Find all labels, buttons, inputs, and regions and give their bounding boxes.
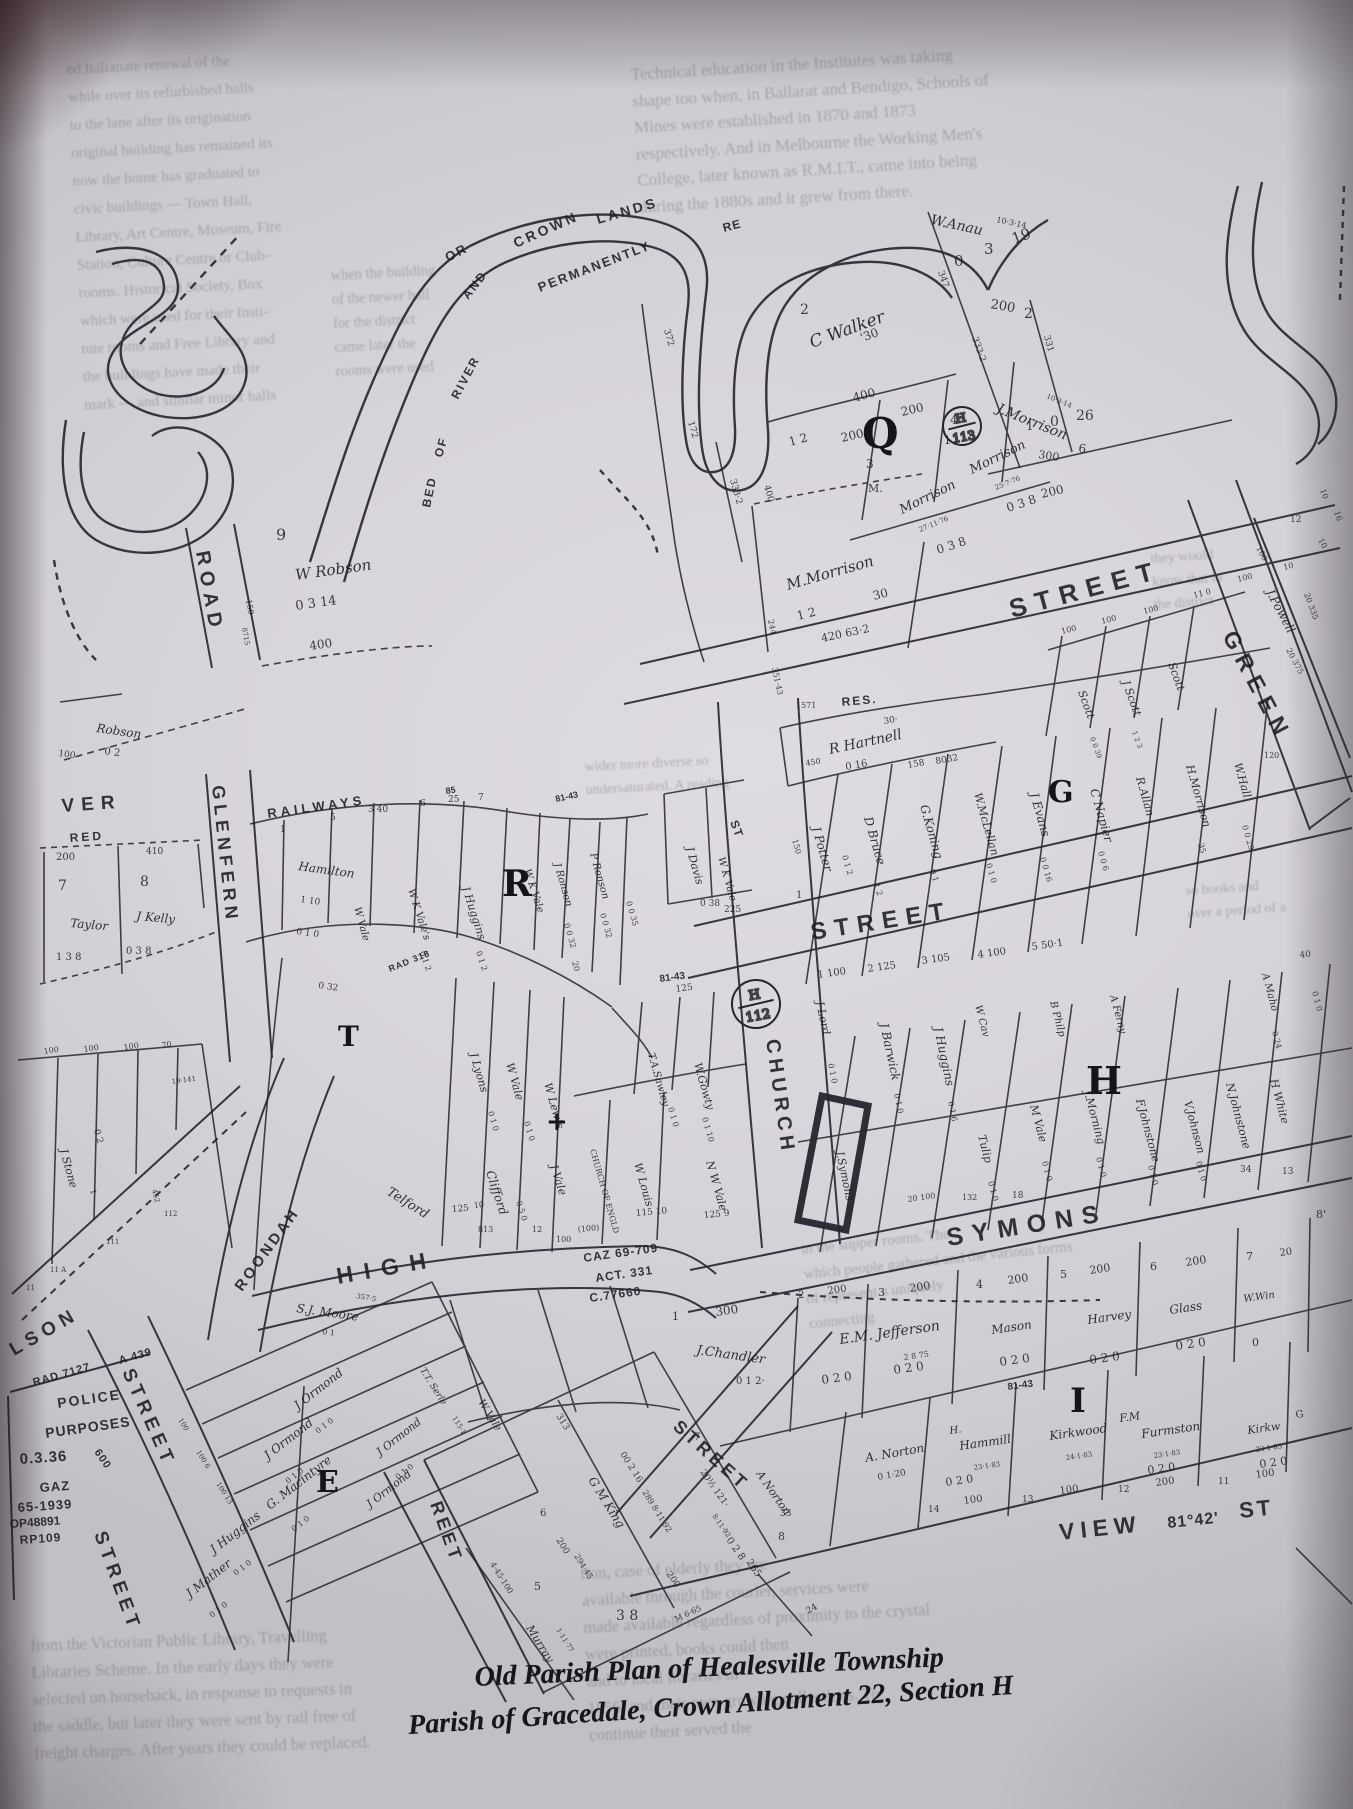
street-or-survey-label: OR (442, 240, 470, 264)
lot-label: 0 1 2 (474, 950, 489, 972)
street-or-survey-label: RP109 (19, 1530, 62, 1547)
lot-label: 100 (1059, 1483, 1079, 1497)
lot-label: 0 1 (322, 1327, 336, 1338)
lot-label: 30· (883, 715, 899, 727)
lot-label: J Mather (181, 1556, 235, 1603)
lot-label: 4·45·100 (488, 1560, 515, 1595)
lot-label: 115 10 (635, 1206, 668, 1219)
lot-label: 20 100 (907, 1191, 936, 1204)
lot-label: Kirkw (1246, 1419, 1282, 1437)
lot-label: 200 (56, 852, 75, 863)
lot-label: 0 2 0 (1174, 1335, 1206, 1353)
lot-label: 4 100 (977, 946, 1007, 961)
lot-label: 0 2 (104, 746, 121, 759)
lot-label: 452 (150, 1188, 161, 1203)
section-letter: G (1048, 775, 1074, 810)
lot-label: 10 (473, 1200, 484, 1210)
lot-label: 0 24 (1270, 1030, 1283, 1050)
street-or-survey-label: RAILWAYS (266, 792, 366, 821)
lot-label: 400 (308, 636, 333, 653)
lot-label: W Lewis (541, 1081, 567, 1130)
street-or-survey-label: POLICE (56, 1386, 122, 1411)
lot-label: CHURCH OF ENGLD (588, 1148, 621, 1234)
lot-label: 11 0 (1192, 587, 1211, 600)
lot-label: 0 2 0 (1147, 1460, 1177, 1477)
lot-label: 0 0 6 (1096, 850, 1110, 872)
street-or-survey-label: RIVER (448, 354, 482, 402)
lot-label: J Ronson (551, 860, 574, 908)
lot-label: T.T. Serle (417, 1366, 448, 1407)
lot-label: 4 (976, 1278, 983, 1291)
lot-label: 3 40 (368, 805, 388, 815)
lot-label: 0 1 0 (296, 927, 320, 940)
lot-label: 0 1 0 (892, 1093, 905, 1115)
lot-label: 25 (448, 795, 460, 805)
lot-label: 4 (950, 413, 958, 427)
lot-label: 3 (866, 457, 874, 471)
lot-label: 100 (1060, 624, 1077, 636)
street-or-survey-label: RES. (841, 692, 878, 709)
lot-label: 125 (451, 1204, 469, 1215)
lot-label: 0 2 0 (998, 1351, 1030, 1369)
lot-label: 132 (962, 1193, 977, 1202)
lot-label: 0 1 0 (1094, 1156, 1108, 1178)
lot-label: 0 2 (91, 1128, 104, 1144)
street-or-survey-label: VIEW (1058, 1510, 1143, 1545)
lot-label: T.A.Sawley (645, 1052, 671, 1108)
lot-label: 158 (907, 758, 926, 771)
lot-label: 33 (780, 1509, 792, 1519)
lot-label: 0 1·20 (877, 1468, 907, 1483)
lot-label: N W Vale (703, 1158, 730, 1212)
lot-label: 10 (1282, 561, 1294, 572)
lot-label: 357·5 (356, 1292, 377, 1303)
lot-label: A. Norton (863, 1441, 925, 1465)
lot-label: 8·11·92 (710, 1513, 732, 1539)
lot-label: E.M. Jefferson (837, 1318, 941, 1348)
section-letter: Q (862, 409, 899, 458)
lot-label: 0 3 14 (294, 593, 337, 614)
lot-label: 8032 (935, 753, 959, 767)
street-or-survey-label: ROAD (191, 549, 227, 634)
lot-label: 6 (540, 1508, 546, 1519)
lot-label: 200 (909, 1279, 932, 1295)
lot-label: 23·1·83 (1255, 1442, 1283, 1454)
street-or-survey-label: 600 (92, 1447, 114, 1471)
lot-label: 0 2 8 (724, 1535, 748, 1562)
lot-label: 200 (900, 400, 925, 419)
lot-label: J Lyons (467, 1049, 491, 1094)
lot-label: Clifford (483, 1169, 511, 1217)
lot-label: 0 1 0 (486, 1110, 500, 1132)
street-or-survey-label: RE (721, 217, 743, 235)
lot-label: 11 A (50, 1266, 67, 1274)
lot-label: Tulip (975, 1133, 995, 1164)
lot-label: 200 (989, 297, 1016, 316)
survey-circle-112: H 112 (728, 976, 784, 1032)
lot-label: 12 (1118, 1485, 1129, 1495)
street-or-survey-label: 0.3.36 (19, 1448, 68, 1468)
lot-label: 410 (146, 847, 163, 857)
lot-label: J Davis (683, 843, 707, 886)
lot-label: R Hartnell (827, 727, 904, 758)
lot-label: 0 1 6 (946, 1101, 959, 1123)
lot-label: 8 (140, 874, 149, 890)
lot-label: Harvey (1085, 1307, 1132, 1327)
lot-label: 200 (1185, 1253, 1208, 1269)
lot-label: 3 (878, 1286, 885, 1299)
lot-label: 1 (1026, 419, 1034, 433)
street-or-survey-label: 81-43 (1007, 1378, 1034, 1393)
section-letter: T (338, 1020, 359, 1053)
lot-label: W K Vale's (405, 888, 432, 942)
lot-label: 0 1 10 (700, 1116, 716, 1143)
circle-112-bottom: 112 (745, 1007, 772, 1026)
lot-label: W.Hall (1231, 761, 1254, 800)
street-or-survey-label: 81-43 (554, 789, 579, 804)
lot-label: 0 38 (700, 899, 720, 909)
lot-label: 2 (800, 302, 809, 318)
street-or-survey-label: GREEN (1218, 626, 1298, 746)
lot-label: 70 (161, 1040, 172, 1050)
lot-label: J Potter (808, 822, 835, 874)
lot-label: 813 (478, 1225, 493, 1234)
lot-label: 0 2 0 (820, 1369, 852, 1387)
lot-label: 6 (420, 799, 426, 809)
lot-label: 27·11·76 (918, 515, 950, 534)
lot-label: Hammill (957, 1432, 1011, 1453)
lot-label: 244 (766, 619, 778, 636)
lot-label: 1 (88, 1188, 98, 1195)
street-or-survey-label: STREET (809, 897, 954, 946)
lot-label: 0 0 39 (1088, 736, 1103, 760)
lot-label: 25·7·76 (994, 474, 1022, 492)
lot-label: 400 (851, 385, 877, 404)
lot-label: 100 (1142, 604, 1159, 616)
lot-label: 125 9 (703, 1209, 730, 1221)
lot-label: 11 (26, 1284, 35, 1292)
lot-label: 0 1 0 (1194, 1160, 1208, 1182)
lot-label: 6 (1078, 441, 1088, 456)
lot-label: 0 3 8 (1005, 492, 1038, 515)
lot-label: 1 2 (787, 430, 809, 448)
lot-label: 20 (570, 960, 581, 972)
lot-label: Taylor (70, 916, 110, 933)
lot-label: 1 10 (300, 895, 322, 908)
lot-label: 7 (1246, 1250, 1253, 1263)
lot-label: 5 50·1 (1031, 938, 1064, 953)
lot-label: 20 (1279, 1246, 1293, 1259)
lot-label: 0 1 0 (666, 1106, 680, 1128)
lot-label: J Stone (57, 1145, 81, 1189)
street-or-survey-label: AND (459, 268, 490, 302)
lot-label: 7 (478, 793, 484, 803)
lot-label: 225 (724, 905, 741, 915)
street-or-survey-label: OP48891 (9, 1513, 61, 1531)
lot-label: 0 (954, 252, 964, 270)
lot-label: 20 375 (1284, 647, 1305, 676)
lot-label: 12 (1290, 515, 1301, 525)
lot-label: 100 (176, 1417, 190, 1433)
lot-label: 347 (935, 270, 950, 290)
lot-label: A Maho (1259, 971, 1280, 1013)
lot-label: 9 (276, 525, 286, 544)
lot-label: 0 1 2 (840, 854, 854, 876)
lot-label: 8 (778, 1530, 785, 1543)
lot-label: H White (1267, 1076, 1292, 1125)
street-or-survey-label: 65-1939 (17, 1496, 73, 1515)
lot-label: 14 (928, 1505, 940, 1515)
lot-label: 34 (1240, 1165, 1252, 1175)
lot-label: 372 (661, 328, 675, 347)
lot-label: 7 (694, 1432, 700, 1443)
lot-label: M 6·65 (673, 1604, 703, 1624)
lot-label: 0 (1050, 414, 1059, 430)
lot-label: 0 2 0 (945, 1472, 975, 1489)
lot-label: 24·1·83 (1065, 1450, 1093, 1462)
lot-label: J Ormond (372, 1415, 424, 1459)
street-or-survey-label: STREET (89, 1529, 145, 1635)
lot-label: 100 (1236, 572, 1253, 584)
lot-label: 400 (761, 484, 775, 504)
lot-label: 3 8 (616, 1608, 638, 1624)
lot-label: 1·11·77 (554, 1627, 575, 1654)
lot-label: 0 5 0 (514, 1200, 529, 1222)
lot-label: 0 16 (845, 758, 869, 773)
lot-label: W.Win (1243, 1290, 1276, 1305)
lot-label: 112 (164, 1210, 177, 1218)
lot-label: 0 2 0 (1088, 1349, 1120, 1367)
lot-label: S.J. Moore (296, 1301, 360, 1324)
lot-label: F.Johnstone (1133, 1096, 1163, 1163)
lot-label: 0 0 32 (598, 912, 614, 939)
lot-label: W Cav (972, 1004, 991, 1039)
lot-label: 200 (1040, 482, 1065, 501)
lot-label: 200 (827, 1283, 847, 1297)
lot-label: 100 (1254, 545, 1269, 563)
street-or-survey-label: ST (727, 818, 746, 839)
lot-label: G.Koning (917, 803, 946, 861)
lot-label: 111 (106, 1238, 119, 1246)
lot-label: 120 (1264, 751, 1279, 760)
lot-label: 0 2 0 (892, 1359, 924, 1377)
lot-label: H. (948, 1424, 962, 1437)
lot-label: W Robson (294, 555, 372, 583)
lot-label: J Huggins (459, 883, 489, 941)
lot-label: 100 (1100, 614, 1117, 626)
lot-label: 0 32 (318, 981, 339, 994)
street-or-survey-label: CHURCH (761, 1038, 799, 1157)
lot-label: 0 1 0 (984, 862, 998, 884)
lot-label: Telford (384, 1185, 432, 1222)
lot-label: 0 0 35 (624, 900, 640, 927)
lot-label: 26 (1076, 408, 1094, 424)
lot-label: W Vale (503, 1061, 526, 1102)
lot-label: 200 (553, 1536, 571, 1556)
lot-label: 125 (675, 983, 694, 995)
lot-label: 0 1 0 (1310, 990, 1324, 1012)
lot-label: Robson (95, 721, 143, 741)
street-or-survey-label: GAZ (39, 1478, 70, 1495)
lot-label: 0 1 0 (522, 1120, 536, 1142)
scanned-book-page: ed Italianate renewal of thewhile over i… (0, 0, 1353, 1809)
lot-label: M Vale (1027, 1102, 1050, 1144)
lot-label: 19 (1009, 224, 1033, 247)
lot-label: 16 (1332, 510, 1344, 523)
lot-label: Scott (1075, 689, 1097, 721)
lot-label: J Huggins (930, 1023, 957, 1087)
street-or-survey-label: 81-43 (659, 970, 686, 985)
lot-label: 200 (1155, 1475, 1175, 1489)
lot-label: 5 (1060, 1268, 1067, 1281)
lot-label: 0 1 0 (290, 1514, 312, 1534)
lot-label: 300 (714, 1302, 739, 1319)
lot-label: 24 (805, 1602, 820, 1617)
lot-label: 0 (1252, 1336, 1259, 1349)
lot-label: 2 125 (867, 960, 897, 975)
lot-label: 0 1 0 (1146, 1164, 1160, 1186)
lot-label: 0 0 16 (1038, 856, 1054, 883)
lot-label: M.Morrison (783, 552, 875, 594)
lot-label: 100 (83, 1043, 99, 1054)
lot-label: 115·1 (450, 1415, 467, 1436)
lot-label: 0 1 2· (736, 1376, 765, 1387)
street-or-survey-label: BED (419, 475, 439, 509)
lot-label: 13 (1282, 1167, 1294, 1177)
lot-label: 7 (58, 878, 67, 894)
lot-label: 1 2 3 (1130, 730, 1144, 749)
lot-label: 313 (553, 1412, 571, 1432)
street-or-survey-label: LSON (6, 1304, 83, 1361)
street-or-survey-label: ROONDAH (231, 1205, 303, 1295)
lot-label: N.Johnstone (1223, 1080, 1254, 1150)
lot-label: 30 (871, 586, 889, 603)
lot-label: 23·1·83 (1153, 1448, 1181, 1460)
street-or-survey-label: LANDS (594, 194, 659, 227)
lot-label: 150 (790, 838, 803, 855)
lot-label: J Huggins (205, 1508, 263, 1558)
lot-label: M. (868, 482, 883, 495)
lot-label: 100 (556, 1235, 571, 1244)
lot-label: 0 1 0 (232, 1558, 254, 1578)
lot-label: 19·141 (171, 1075, 196, 1086)
lot-label: 0 3 8 (126, 946, 151, 957)
street-or-survey-label: 81°42' (1167, 1510, 1220, 1532)
lot-label: P Ronson (587, 851, 611, 901)
lot-label: 2 (798, 1290, 804, 1301)
street-or-survey-label: CAZ 69-709 (582, 1241, 659, 1265)
lot-label: 10 (1318, 488, 1330, 501)
lot-label: 2 (1024, 306, 1033, 322)
lot-label: 0 1 0 (986, 1180, 1000, 1202)
lot-label: B Philp (1047, 999, 1067, 1039)
lot-label: 1 (796, 890, 802, 901)
lot-label: 0 1 0 (1040, 1160, 1054, 1182)
street-or-survey-label: ST (1238, 1495, 1275, 1523)
street-or-survey-label: RED (69, 829, 104, 845)
lot-label: J Lord (813, 998, 833, 1036)
lot-label: 333·2 (969, 336, 987, 364)
lot-label: 10 (1316, 537, 1329, 550)
lot-label: J Kelly (133, 909, 176, 927)
lot-label: 3 (984, 240, 994, 258)
lot-label: 1 (672, 1310, 679, 1323)
street-or-survey-label: VER (61, 792, 122, 817)
lot-label: Furmston (1139, 1419, 1200, 1441)
lot-label: J Vale (547, 1161, 570, 1197)
lot-label: W.Anau (929, 212, 984, 239)
street-or-survey-label: OF (431, 435, 450, 459)
lot-label: 00 2 16 (617, 1450, 644, 1485)
lot-label: 100 (963, 1493, 983, 1507)
street-or-survey-label: HIGH (334, 1246, 438, 1289)
lot-label: F.M (1118, 1409, 1142, 1425)
lot-label: 5 (330, 813, 336, 823)
circle-113-bottom: 113 (951, 428, 976, 446)
lot-label: 8' (1316, 1208, 1326, 1221)
lot-label: 351·43 (770, 667, 785, 696)
section-letter: I (1070, 1381, 1086, 1421)
lot-label: 35 (1196, 842, 1207, 854)
lot-label: 18 (1012, 1191, 1024, 1201)
lot-label: 1 (280, 825, 286, 835)
lot-label: (100) (577, 1223, 599, 1234)
lot-label: J Ormond (259, 1415, 316, 1464)
lot-label: J Barwick (876, 1019, 902, 1082)
circle-112-top: H (748, 987, 762, 1004)
lot-label: J.Powell (1262, 584, 1298, 635)
parish-plan-map: H 113 H 112 ORCROWNLANDSANDPERMANENTLYRE… (0, 0, 1353, 1809)
lot-label: G M King (585, 1474, 628, 1531)
lot-label: Kirkwood (1047, 1421, 1108, 1443)
lot-label: 1 3 8 (56, 952, 81, 963)
lot-label: 8715 (240, 627, 251, 646)
lot-label: 200 (1007, 1271, 1030, 1287)
lot-label: 0 1 0 (208, 1600, 230, 1620)
lot-label: 20 335 (1302, 592, 1320, 621)
lot-label: 450 (805, 756, 822, 768)
lot-label: W Louis (631, 1161, 656, 1208)
lot-label: 11 (1218, 1477, 1229, 1487)
lot-label: Hamilton (297, 859, 356, 881)
lot-label: 0 1 0 (826, 1063, 839, 1085)
lot-label: V.Johnson (1181, 1099, 1208, 1155)
lot-label: 40 (1299, 949, 1312, 961)
lot-label: 13 (1022, 1495, 1034, 1505)
lot-label: 3 105 (921, 952, 951, 967)
lot-label: 100 6 (194, 1449, 212, 1471)
lot-label: 1571 (796, 701, 816, 710)
lot-label: 0 0 32 (562, 922, 578, 949)
lot-label: 100 (58, 749, 77, 761)
lot-label: 6 (1150, 1260, 1157, 1273)
lot-label: J Scott (1118, 677, 1144, 719)
lot-label: G (1295, 1409, 1304, 1421)
street-or-survey-label: PURPOSES (44, 1413, 131, 1441)
lot-label: 1 2 (795, 605, 817, 623)
lot-label: 0 3 8 (935, 534, 968, 557)
lot-label: 100 (43, 1045, 59, 1056)
lot-label: W.McLellan (971, 791, 1001, 857)
lot-label: J.Chandler (692, 1343, 766, 1368)
lot-label: 12 (532, 1225, 542, 1234)
lot-label: 172 (685, 420, 699, 439)
lot-label: 0 1 0 (314, 1416, 336, 1436)
lot-label: 420 63·2 (820, 622, 871, 645)
lot-label: Mason (989, 1317, 1032, 1337)
street-or-survey-label: ACT. 331 (594, 1263, 653, 1285)
lot-label: 23·1·83 (973, 1460, 1001, 1472)
